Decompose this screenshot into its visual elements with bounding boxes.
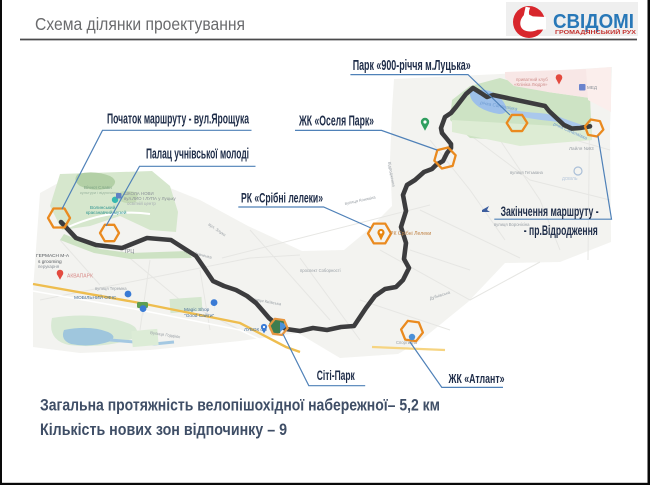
svg-text:Початок маршруту - вул.Ярощука: Початок маршруту - вул.Ярощука bbox=[107, 111, 249, 128]
svg-text:ТРЦ: ТРЦ bbox=[124, 249, 134, 255]
svg-text:краєзнавчий музей: краєзнавчий музей bbox=[86, 209, 127, 215]
svg-text:вулиця Гетьмана: вулиця Гетьмана bbox=[510, 170, 544, 175]
svg-text:Magic Shop: Magic Shop bbox=[184, 307, 210, 313]
svg-text:ДОВІЛЬ: ДОВІЛЬ bbox=[562, 176, 578, 181]
svg-text:МЕД: МЕД bbox=[587, 85, 598, 90]
svg-text:Схема ділянки проектування: Схема ділянки проектування bbox=[35, 14, 245, 34]
svg-text:Палац учнівської молоді: Палац учнівської молоді bbox=[146, 146, 249, 163]
svg-text:перукарня: перукарня bbox=[38, 264, 60, 269]
svg-text:АКВАПАРК: АКВАПАРК bbox=[67, 274, 93, 280]
svg-text:ЖК «Оселя Парк»: ЖК «Оселя Парк» bbox=[298, 112, 374, 129]
svg-text:ГРОМАДЯНСЬКИЙ РУХ: ГРОМАДЯНСЬКИЙ РУХ bbox=[555, 28, 636, 36]
svg-text:освітній центр: освітній центр bbox=[127, 201, 156, 206]
svg-text:РК «Срібні лелеки»: РК «Срібні лелеки» bbox=[241, 190, 323, 206]
svg-text:Загальна протяжність велопішох: Загальна протяжність велопішохідної набе… bbox=[40, 395, 440, 414]
svg-text:проспект Соборності: проспект Соборності bbox=[300, 268, 341, 273]
svg-text:Лайля №93: Лайля №93 bbox=[569, 145, 594, 151]
svg-text:Парк «900-річчя м.Луцька»: Парк «900-річчя м.Луцька» bbox=[353, 58, 471, 74]
svg-text:ЖК «Атлант»: ЖК «Атлант» bbox=[448, 371, 505, 386]
svg-text:Кількість нових зон відпочинку: Кількість нових зон відпочинку – 9 bbox=[40, 420, 287, 439]
svg-text:Закінчення маршруту -: Закінчення маршруту - bbox=[501, 204, 599, 219]
svg-text:вулиця Теремна: вулиця Теремна bbox=[95, 286, 127, 291]
svg-text:РК Срібні Лелеки: РК Срібні Лелеки bbox=[390, 231, 431, 237]
svg-text:«Клініка Людря»: «Клініка Людря» bbox=[514, 82, 548, 87]
svg-text:ГЕРМАСН М-А: ГЕРМАСН М-А bbox=[36, 253, 70, 259]
svg-text:"Good Сайти": "Good Сайти" bbox=[184, 312, 215, 319]
svg-text:- пр.Відродження: - пр.Відродження bbox=[524, 223, 598, 238]
svg-text:Сіті-Парк: Сіті-Парк bbox=[317, 368, 355, 383]
svg-text:культури і відпочинку: культури і відпочинку bbox=[80, 190, 119, 195]
